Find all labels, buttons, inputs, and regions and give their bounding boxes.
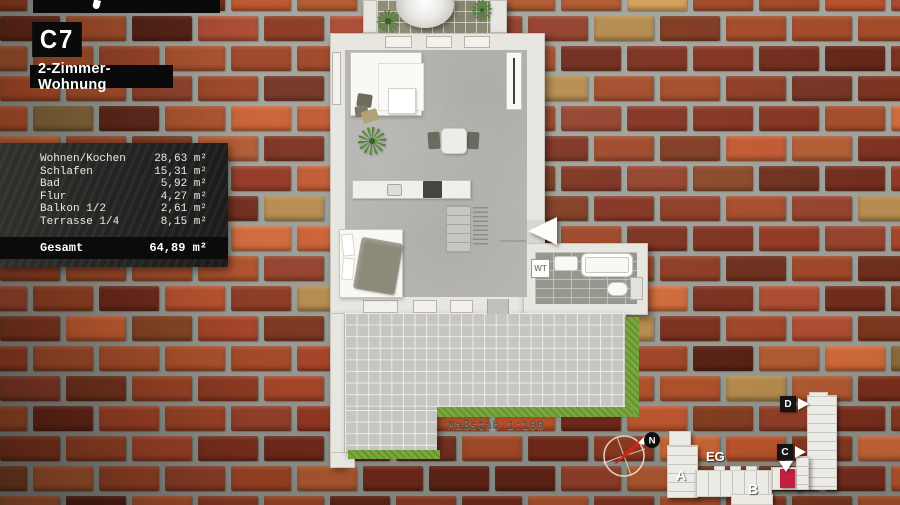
room-area: 4,27 m² [161, 191, 207, 204]
marker-d-label: D [784, 399, 791, 410]
entrance-arrow-icon [528, 217, 557, 245]
table-row: Wohnen/Kochen 28,63 m² [0, 153, 228, 166]
ladder-hatch [473, 207, 488, 245]
unit-type-label: 2-Zimmer-Wohnung [38, 61, 173, 93]
stove [423, 181, 442, 198]
room-label: Bad [40, 178, 60, 191]
scale-label: Maßstab 1:100 [448, 420, 544, 433]
washbasin-label: WT [534, 264, 546, 273]
bed-pillow [341, 258, 355, 281]
area-table: Wohnen/Kochen 28,63 m² Schlafen 15,31 m²… [0, 153, 228, 229]
room-label: Wohnen/Kochen [40, 153, 126, 166]
room-label: Flur [40, 191, 66, 204]
marker-d-badge: D [780, 396, 796, 412]
table-row: Flur 4,27 m² [0, 191, 228, 204]
table-row: Terrasse 1/4 8,15 m² [0, 216, 228, 229]
bathroom-niche [630, 277, 643, 300]
floor-level-label: EG [706, 449, 725, 464]
site-building-d [807, 395, 837, 490]
wardrobe-handle [513, 58, 515, 104]
total-area-row: Gesamt 64,89 m² [0, 237, 228, 259]
dining-table [441, 128, 467, 154]
room-area: 5,92 m² [161, 178, 207, 191]
compass: N [594, 426, 668, 494]
chair [427, 132, 440, 150]
building-b-label: B [748, 481, 758, 497]
kitchen-counter [352, 180, 471, 199]
unit-code: C7 [40, 24, 74, 55]
grass-strip-right [625, 317, 639, 417]
site-balcony [730, 466, 741, 471]
coffee-table [388, 88, 416, 114]
site-building-a-top [669, 431, 691, 446]
terrace-floor-lower [345, 410, 437, 452]
table-row: Schlafen 15,31 m² [0, 166, 228, 179]
marker-c-label: C [781, 447, 788, 458]
marker-c-down-arrow-icon [779, 461, 793, 472]
total-label: Gesamt [40, 241, 83, 255]
table-row: Bad 5,92 m² [0, 178, 228, 191]
apartment-floorplan-page: C7 2-Zimmer-Wohnung Wohnen/Kochen 28,63 … [0, 0, 900, 505]
plant [472, 0, 492, 20]
plant [377, 10, 399, 32]
grass-strip-lower-left [348, 450, 440, 459]
terrace-wall-left [330, 313, 345, 466]
bed-pillow [341, 233, 355, 256]
balcony-wall-right [490, 0, 507, 33]
room-label: Balkon 1/2 [40, 203, 106, 216]
site-balcony [746, 466, 757, 471]
balcony-door-window [385, 36, 412, 48]
door-leaf [500, 240, 526, 242]
terrace-floor [345, 313, 626, 410]
terrace-window [413, 300, 437, 313]
table-row: Balkon 1/2 2,61 m² [0, 203, 228, 216]
unit-type-banner: 2-Zimmer-Wohnung [30, 65, 173, 88]
stairs [446, 205, 471, 253]
terrace-window [450, 300, 473, 313]
grass-strip-bottom [437, 407, 633, 417]
area-table-panel: Wohnen/Kochen 28,63 m² Schlafen 15,31 m²… [0, 143, 228, 267]
bathroom-sink [554, 256, 578, 271]
terrace-window [363, 300, 398, 313]
toilet [607, 282, 628, 296]
total-area: 64,89 m² [149, 241, 207, 255]
terrace-door-opening [487, 299, 509, 314]
balcony-door-window [426, 36, 452, 48]
marker-c-badge: C [777, 444, 793, 460]
room-area: 2,61 m² [161, 203, 207, 216]
building-a-label: A [676, 467, 686, 483]
kitchen-sink [387, 184, 402, 196]
site-balcony [809, 392, 828, 397]
plant [358, 127, 386, 155]
north-label: N [649, 436, 656, 447]
room-area: 15,31 m² [154, 166, 207, 179]
marker-c-arrow-icon [795, 446, 806, 458]
bathtub [581, 253, 633, 277]
room-area: 28,63 m² [154, 153, 207, 166]
chair [466, 132, 479, 150]
logo-letter-fragment [92, 0, 101, 10]
room-label: Terrasse 1/4 [40, 216, 119, 229]
site-balcony [714, 466, 725, 471]
cropped-logo-banner [33, 0, 220, 13]
site-building-c-step [796, 456, 809, 490]
marker-d-arrow-icon [798, 398, 809, 410]
room-area: 8,15 m² [161, 216, 207, 229]
balcony-door-window [464, 36, 490, 48]
unit-code-badge: C7 [32, 22, 82, 57]
side-window [332, 52, 341, 105]
washbasin-box: WT [531, 259, 550, 278]
balcony-wall-left [363, 0, 377, 33]
bed-blanket [353, 237, 403, 296]
room-label: Schlafen [40, 166, 93, 179]
site-building-ab-wing [695, 470, 772, 497]
